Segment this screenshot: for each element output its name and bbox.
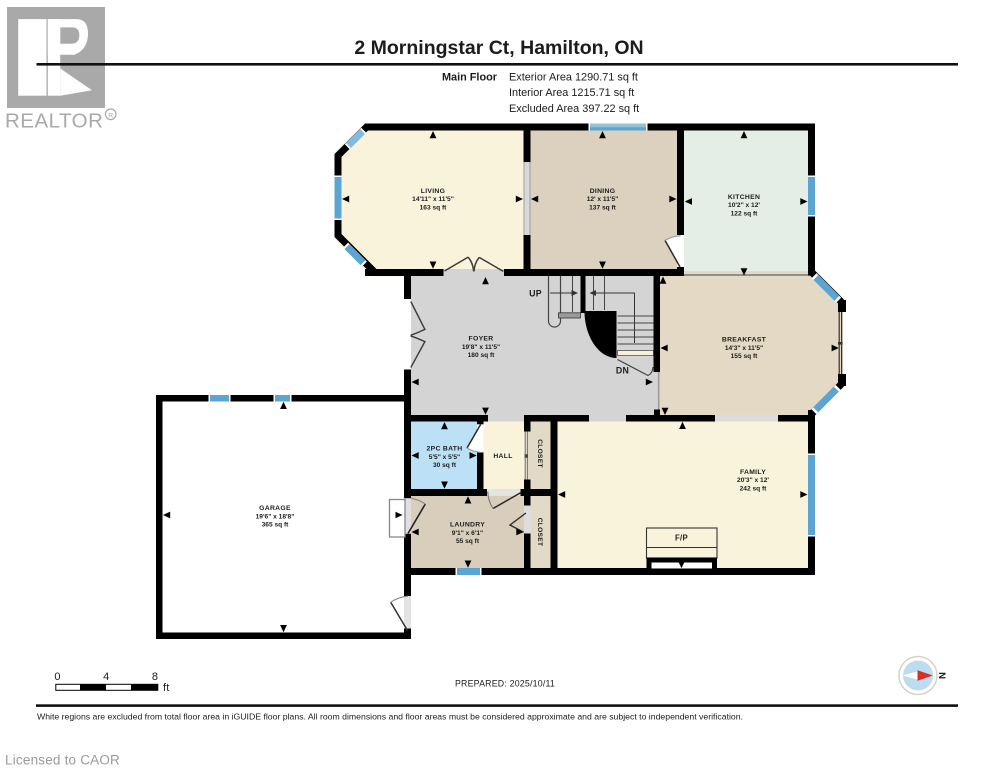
svg-text:55 sq ft: 55 sq ft	[456, 538, 480, 545]
svg-text:137 sq ft: 137 sq ft	[589, 204, 617, 211]
svg-text:Licensed to CAOR: Licensed to CAOR	[5, 753, 120, 768]
svg-text:UP: UP	[529, 289, 542, 299]
svg-text:12' x 11'5": 12' x 11'5"	[587, 196, 619, 203]
svg-text:CLOSET: CLOSET	[536, 439, 543, 468]
svg-text:Main Floor: Main Floor	[442, 71, 498, 83]
svg-text:30 sq ft: 30 sq ft	[433, 462, 457, 469]
svg-text:HALL: HALL	[493, 453, 512, 460]
svg-text:10'2" x 12': 10'2" x 12'	[728, 202, 760, 209]
svg-text:242 sq ft: 242 sq ft	[740, 485, 768, 492]
svg-text:R: R	[108, 112, 113, 119]
svg-text:5'5" x 5'5": 5'5" x 5'5"	[429, 454, 460, 461]
svg-text:FOYER: FOYER	[469, 336, 494, 343]
svg-text:19'6" x 18'8": 19'6" x 18'8"	[256, 513, 295, 520]
svg-text:White regions are excluded fro: White regions are excluded from total fl…	[37, 712, 743, 722]
svg-text:Exterior Area 1290.71 sq ft: Exterior Area 1290.71 sq ft	[509, 71, 638, 83]
svg-text:CLOSET: CLOSET	[536, 518, 543, 547]
svg-text:365 sq ft: 365 sq ft	[262, 522, 290, 529]
svg-text:GARAGE: GARAGE	[259, 505, 291, 512]
svg-text:FAMILY: FAMILY	[740, 469, 766, 476]
svg-text:REALTOR: REALTOR	[5, 110, 103, 133]
svg-text:Excluded Area 397.22 sq ft: Excluded Area 397.22 sq ft	[509, 103, 639, 115]
svg-text:ft: ft	[163, 682, 170, 694]
svg-text:N: N	[936, 672, 947, 679]
svg-text:LIVING: LIVING	[421, 188, 445, 195]
svg-text:DN: DN	[616, 366, 629, 376]
svg-text:8: 8	[152, 671, 158, 683]
svg-text:BREAKFAST: BREAKFAST	[722, 337, 767, 344]
svg-text:DINING: DINING	[590, 188, 616, 195]
svg-text:155 sq ft: 155 sq ft	[731, 353, 759, 360]
svg-text:20'3" x 12': 20'3" x 12'	[737, 477, 769, 484]
svg-text:F/P: F/P	[675, 534, 688, 543]
svg-text:2 Morningstar Ct, Hamilton, ON: 2 Morningstar Ct, Hamilton, ON	[354, 37, 643, 59]
svg-text:122 sq ft: 122 sq ft	[731, 210, 759, 217]
svg-text:163 sq ft: 163 sq ft	[420, 204, 448, 211]
svg-text:14'3" x 11'5": 14'3" x 11'5"	[725, 345, 763, 352]
svg-text:PREPARED: 2025/10/11: PREPARED: 2025/10/11	[455, 679, 555, 689]
svg-text:Interior Area 1215.71 sq ft: Interior Area 1215.71 sq ft	[509, 87, 634, 99]
svg-text:4: 4	[103, 671, 109, 683]
svg-text:14'11" x 11'5": 14'11" x 11'5"	[412, 196, 454, 203]
svg-text:LAUNDRY: LAUNDRY	[450, 522, 485, 529]
svg-text:19'8" x 11'5": 19'8" x 11'5"	[462, 344, 500, 351]
svg-text:KITCHEN: KITCHEN	[728, 194, 760, 201]
svg-text:0: 0	[54, 671, 60, 683]
svg-text:2PC BATH: 2PC BATH	[427, 446, 463, 453]
svg-text:9'1" x 6'1": 9'1" x 6'1"	[452, 530, 483, 537]
svg-text:180 sq ft: 180 sq ft	[468, 352, 496, 359]
